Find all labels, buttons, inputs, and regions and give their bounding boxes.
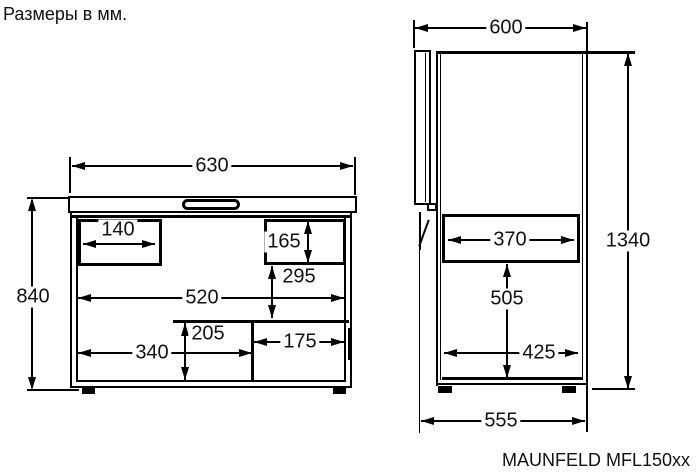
side-dim-425-label: 425 (519, 343, 558, 364)
lid-handle (182, 199, 240, 210)
side-dim-425-arrow-left (444, 349, 457, 357)
side-front-wall-outer (436, 52, 438, 386)
side-foot-right (562, 386, 576, 393)
front-dim-175-arrow-left (254, 338, 267, 346)
front-dim-840-arrow-down (28, 377, 36, 390)
side-top-line (436, 51, 635, 54)
model-label: MAUNFELD MFL150xx (502, 450, 690, 471)
side-bottom-inner (442, 377, 583, 380)
dimension-drawing: Размеры в мм. MAUNFELD MFL150xx (0, 0, 700, 476)
front-foot-left (82, 388, 95, 394)
front-foot-right (333, 388, 346, 394)
side-dim-370-arrow-right (561, 236, 574, 244)
side-front-wall-inner (440, 54, 441, 380)
front-dim-840-arrow-up (28, 198, 36, 211)
side-dim-505-arrow-down (503, 365, 511, 378)
front-dim-295-label: 295 (279, 267, 318, 288)
side-dim-600-label: 600 (486, 18, 525, 39)
side-dim-600-arrow-left (415, 24, 428, 32)
side-lid-inner-line (425, 53, 426, 202)
side-dim-555-arrow-left (421, 417, 434, 425)
side-dim-505-line (506, 264, 508, 378)
front-dim-630-arrow-left (72, 162, 85, 170)
front-dim-340-arrow-right (239, 349, 252, 357)
side-dim-555-arrow-right (572, 417, 585, 425)
front-dim-520-label: 520 (182, 288, 221, 309)
front-dim-140-label: 140 (98, 220, 137, 241)
front-dim-340-label: 340 (132, 343, 171, 364)
front-dim-520-arrow-right (331, 294, 344, 302)
side-dim-555-ext-left (419, 250, 420, 433)
side-foot-left (438, 386, 452, 393)
front-dim-295-arrow-down (268, 305, 276, 318)
side-dim-370-label: 370 (490, 230, 529, 251)
front-dim-520-arrow-left (78, 294, 91, 302)
front-dim-630-label: 630 (192, 156, 231, 177)
front-dim-175-label: 175 (280, 332, 319, 353)
front-dim-205-arrow-down (181, 367, 189, 380)
side-open-lid (414, 50, 431, 205)
side-back-wall-outer (586, 22, 588, 432)
side-bottom-outer (436, 383, 588, 385)
front-dim-340-arrow-left (78, 349, 91, 357)
front-dim-630-ext-left (69, 157, 71, 193)
side-dim-1340-label: 1340 (603, 231, 654, 252)
side-dim-370-arrow-left (448, 236, 461, 244)
front-dim-165-arrow-down (304, 250, 312, 263)
front-dim-630-arrow-right (340, 162, 353, 170)
side-dim-600-arrow-right (573, 24, 586, 32)
front-dim-295-arrow-up (268, 266, 276, 279)
side-dim-1340-line (627, 53, 629, 389)
front-dim-165-label: 165 (264, 232, 303, 253)
front-dim-175-arrow-right (331, 338, 344, 346)
page-title: Размеры в мм. (3, 4, 127, 25)
side-dim-1340-arrow-up (624, 53, 632, 66)
side-dim-505-arrow-up (503, 264, 511, 277)
side-dim-1340-arrow-down (624, 376, 632, 389)
front-dim-165-arrow-up (304, 221, 312, 234)
front-dim-205-label: 205 (188, 324, 227, 345)
front-dim-630-ext-right (354, 157, 356, 195)
side-dim-425-arrow-right (565, 349, 578, 357)
side-hinge-tab (427, 203, 437, 211)
side-dim-505-label: 505 (487, 289, 526, 310)
front-dim-175-ext (348, 328, 350, 360)
side-back-wall-inner (582, 54, 583, 380)
front-dim-840-label: 840 (13, 287, 52, 308)
front-dim-140-arrow-left (83, 240, 96, 248)
side-dim-555-label: 555 (481, 411, 520, 432)
front-dim-140-arrow-right (142, 240, 155, 248)
